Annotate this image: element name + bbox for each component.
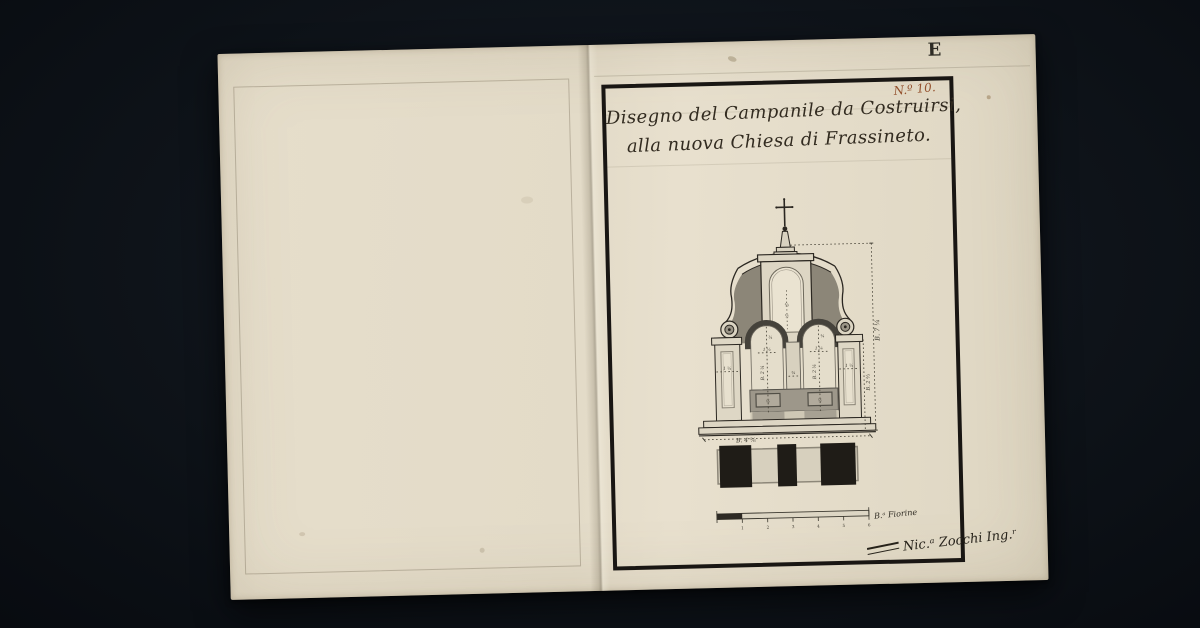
ink-speck: [987, 95, 991, 99]
pilaster-left: [712, 337, 744, 421]
dim-arch-left-width: 1 ¼: [763, 347, 771, 352]
plate-letter: E: [927, 39, 942, 60]
scale-tick-6: 6: [868, 522, 871, 527]
scale-tick-2: 2: [766, 525, 769, 530]
scale-bar: 1 2 3 4 5 6 B.ᵃ Fiorine: [717, 506, 918, 531]
scale-tick-3: 3: [792, 524, 795, 529]
dim-overall-height: B. 7 ¼: [873, 319, 882, 342]
dim-body-height: B. 2 ⅔: [865, 374, 871, 392]
scale-tick-5: 5: [842, 523, 845, 528]
page-right-drawing: E N.º 10. Disegno del Campanile da Costr…: [587, 34, 1048, 591]
scale-tick-numbers: 1 2 3 4 5 6: [741, 522, 871, 530]
dim-pier-width: ¾: [791, 370, 795, 375]
scale-unit-label: B.ᵃ Fiorine: [873, 508, 918, 521]
dim-niche-upper: ⅔: [785, 302, 789, 307]
plan-strip: [717, 443, 858, 488]
dim-base-width: B. 4 ⅚: [735, 437, 756, 445]
plan-pier-right: [820, 443, 856, 486]
plan-pier-center: [777, 444, 797, 486]
manuscript-sheet: E N.º 10. Disegno del Campanile da Costr…: [217, 34, 1048, 600]
volute-right: [837, 318, 854, 335]
dim-arch-right-width: 1 ¼: [815, 345, 823, 350]
dim-arch-left-top: ¾: [768, 335, 772, 340]
dim-arch-right-top: ¾: [820, 333, 824, 338]
volute-left: [721, 321, 738, 338]
scan-background: E N.º 10. Disegno del Campanile da Costr…: [0, 0, 1200, 628]
page-left-blank: [217, 45, 600, 600]
cross-finial: [773, 198, 797, 257]
dim-parapet-left: ½: [766, 399, 770, 404]
scale-tick-1: 1: [741, 525, 744, 530]
ruled-guideline: [594, 65, 1030, 77]
parapet-band: [750, 388, 839, 420]
pencil-smudge: [727, 55, 737, 63]
dim-niche-lower: ½: [785, 313, 789, 318]
plan-pier-left: [719, 445, 752, 488]
scale-tick-4: 4: [817, 523, 820, 528]
drawing-frame-border: N.º 10. Disegno del Campanile da Costrui…: [601, 76, 965, 570]
pencil-margin-border: [233, 78, 581, 574]
dim-parapet-right: ½: [818, 397, 822, 402]
dim-pilaster-left: 1 ¼: [723, 366, 731, 371]
campanile-elevation-drawing: ⅔ ½: [605, 80, 961, 566]
signature-flourish: [867, 542, 899, 555]
pilaster-right: [836, 334, 865, 418]
dim-pilaster-right: 1 ¼: [845, 363, 853, 368]
